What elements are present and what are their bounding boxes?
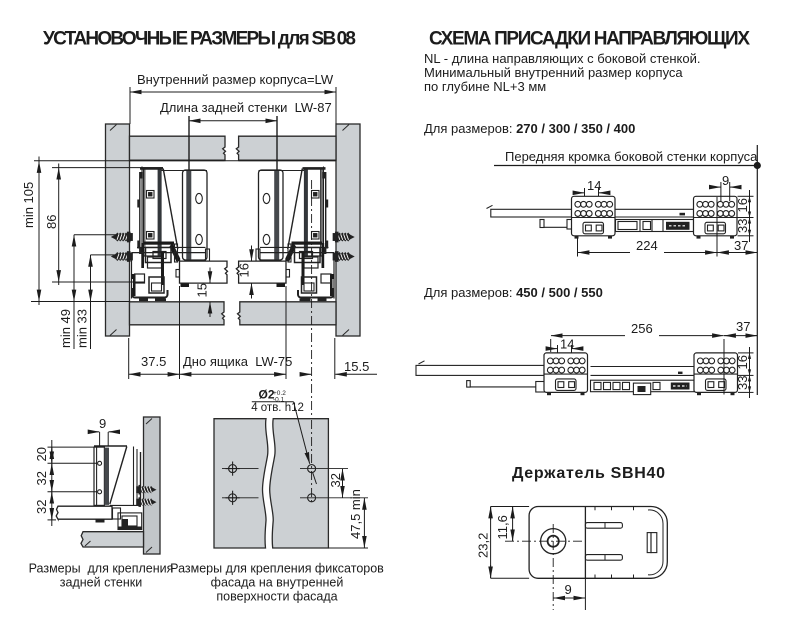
svg-text:Внутренний размер корпуса=LW: Внутренний размер корпуса=LW [137, 72, 334, 87]
svg-text:по глубине NL+3 мм: по глубине NL+3 мм [424, 79, 546, 94]
svg-text:СХЕМА ПРИСАДКИ НАПРАВЛЯЮЩИХ: СХЕМА ПРИСАДКИ НАПРАВЛЯЮЩИХ [429, 28, 750, 49]
svg-text:15: 15 [195, 283, 210, 297]
svg-text:УСТАНОВОЧНЫЕ РАЗМЕРЫ для SB 08: УСТАНОВОЧНЫЕ РАЗМЕРЫ для SB 08 [43, 28, 356, 49]
svg-text:15.5: 15.5 [344, 359, 369, 374]
svg-text:33: 33 [735, 219, 750, 233]
svg-text:20: 20 [34, 447, 49, 461]
svg-text:min 105: min 105 [21, 182, 36, 228]
svg-text:Для размеров: 270 / 300 / 350: Для размеров: 270 / 300 / 350 / 400 [424, 121, 635, 136]
svg-text:задней стенки: задней стенки [60, 576, 142, 590]
svg-text:min 49: min 49 [58, 309, 73, 348]
svg-text:32: 32 [34, 471, 49, 485]
svg-text:23,2: 23,2 [476, 533, 491, 558]
svg-text:Держатель SBH40: Держатель SBH40 [512, 465, 665, 482]
svg-text:37.5: 37.5 [141, 354, 166, 369]
svg-text:33: 33 [735, 376, 750, 390]
svg-text:37: 37 [736, 319, 750, 334]
svg-text:NL - длина направляющих с боко: NL - длина направляющих с боковой стенко… [424, 51, 700, 66]
svg-text:Дно ящика LW-75: Дно ящика LW-75 [183, 354, 292, 369]
svg-text:32: 32 [34, 500, 49, 514]
svg-text:32: 32 [328, 473, 343, 487]
svg-text:16: 16 [735, 198, 750, 212]
svg-text:256: 256 [631, 321, 653, 336]
svg-text:14: 14 [587, 178, 601, 193]
svg-text:Минимальный внутренний размер: Минимальный внутренний размер корпуса [424, 65, 683, 80]
svg-text:фасада на внутренней: фасада на внутренней [211, 576, 344, 590]
svg-text:9: 9 [565, 582, 572, 597]
svg-text:86: 86 [44, 215, 59, 229]
svg-text:Размеры для крепления фиксатор: Размеры для крепления фиксаторов [170, 562, 384, 576]
svg-text:16: 16 [237, 263, 252, 277]
svg-text:47,5 min: 47,5 min [348, 489, 363, 539]
svg-text:Длина задней стенки LW-87: Длина задней стенки LW-87 [160, 100, 332, 115]
svg-text:37: 37 [734, 238, 748, 253]
svg-text:Передняя кромка боковой стенки: Передняя кромка боковой стенки корпуса [505, 149, 758, 164]
svg-text:Для размеров: 450 / 500 / 550: Для размеров: 450 / 500 / 550 [424, 285, 603, 300]
svg-text:16: 16 [735, 355, 750, 369]
svg-text:224: 224 [636, 238, 658, 253]
svg-text:11,6: 11,6 [495, 515, 510, 539]
svg-text:9: 9 [99, 416, 106, 431]
svg-text:9: 9 [722, 173, 729, 188]
svg-text:14: 14 [560, 337, 574, 352]
svg-text:Размеры для крепления: Размеры для крепления [29, 562, 174, 576]
svg-text:поверхности фасада: поверхности фасада [216, 590, 337, 604]
svg-text:min 33: min 33 [75, 309, 90, 348]
